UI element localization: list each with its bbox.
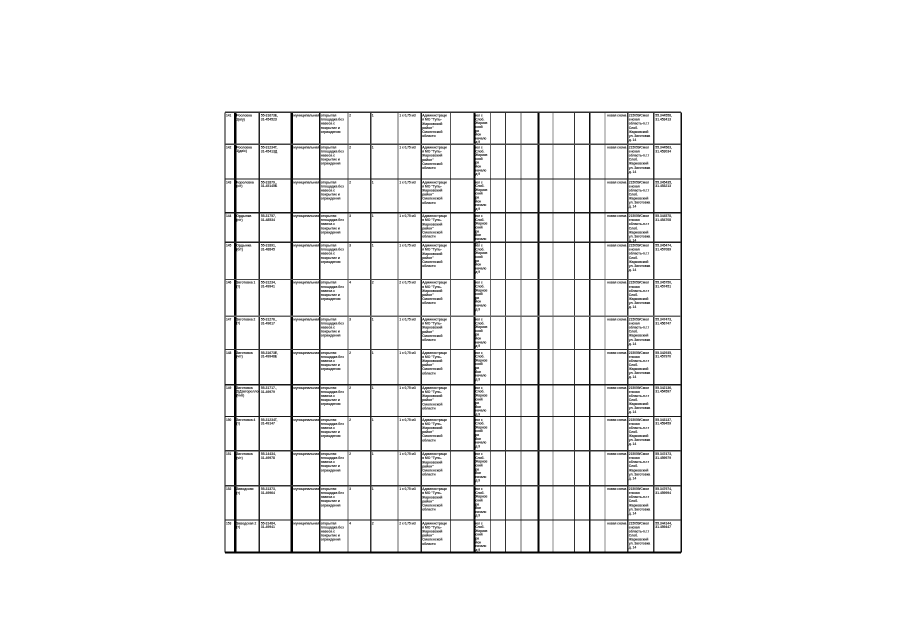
svg-text:2 х 0,75 м3: 2 х 0,75 м3 — [399, 281, 416, 285]
svg-text:2: 2 — [349, 146, 351, 150]
svg-text:муниципальная: муниципальная — [293, 244, 319, 248]
svg-text:153: 153 — [226, 521, 231, 525]
svg-text:31.454708: 31.454708 — [655, 218, 671, 222]
svg-text:д 9: д 9 — [475, 270, 480, 274]
svg-text:д. 14: д. 14 — [629, 138, 637, 142]
svg-text:2: 2 — [349, 386, 351, 390]
svg-text:(ч/т): (ч/т) — [236, 456, 243, 460]
svg-text:2: 2 — [349, 351, 351, 355]
svg-text:1 х 0,75 м3: 1 х 0,75 м3 — [399, 146, 416, 150]
svg-text:142: 142 — [226, 146, 231, 150]
svg-text:новая схема: новая схема — [607, 281, 626, 285]
svg-text:1: 1 — [372, 418, 374, 422]
svg-text:2: 2 — [349, 452, 351, 456]
svg-text:д 9: д 9 — [475, 548, 480, 552]
svg-text:ограждения: ограждения — [321, 297, 341, 301]
svg-text:149: 149 — [226, 386, 231, 390]
svg-text:4: 4 — [349, 521, 351, 525]
svg-text:ограждения: ограждения — [321, 468, 341, 472]
svg-text:области: области — [422, 201, 436, 205]
svg-text:31-49617: 31-49617 — [261, 321, 275, 325]
svg-text:д 9: д 9 — [475, 344, 480, 348]
svg-text:новая схема: новая схема — [607, 146, 626, 150]
svg-text:31-45145Б: 31-45145Б — [261, 184, 278, 188]
svg-text:д. 14: д. 14 — [629, 375, 637, 379]
svg-text:31.453413: 31.453413 — [655, 117, 671, 121]
svg-text:31.459979: 31.459979 — [655, 456, 671, 460]
svg-text:141: 141 — [226, 114, 231, 118]
svg-text:1 х 0,75 м3: 1 х 0,75 м3 — [399, 180, 416, 184]
svg-text:31-49941: 31-49941 — [261, 525, 275, 529]
svg-text:31-49964: 31-49964 — [261, 491, 275, 495]
svg-text:31-45413Д: 31-45413Д — [261, 149, 278, 153]
svg-text:31-49978: 31-49978 — [261, 456, 275, 460]
svg-text:1: 1 — [372, 214, 374, 218]
svg-text:новая схема: новая схема — [607, 114, 626, 118]
svg-text:31.459447: 31.459447 — [655, 525, 671, 529]
svg-text:2: 2 — [372, 281, 374, 285]
svg-text:муниципальная: муниципальная — [293, 521, 319, 525]
svg-text:д 9: д 9 — [475, 307, 480, 311]
svg-text:д 9: д 9 — [475, 207, 480, 211]
svg-text:области: области — [422, 338, 436, 342]
svg-text:152: 152 — [226, 487, 231, 491]
svg-text:1: 1 — [372, 487, 374, 491]
svg-text:новая схема: новая схема — [607, 214, 626, 218]
svg-text:области: области — [422, 264, 436, 268]
svg-text:3: 3 — [349, 318, 351, 322]
svg-text:31.459459: 31.459459 — [655, 422, 671, 426]
svg-text:1: 1 — [372, 351, 374, 355]
svg-text:31.457089: 31.457089 — [655, 247, 671, 251]
svg-text:2: 2 — [349, 180, 351, 184]
svg-text:д. 14: д. 14 — [629, 546, 637, 550]
svg-text:д 9: д 9 — [475, 479, 480, 483]
svg-text:31-48534: 31-48534 — [261, 218, 275, 222]
svg-text:новая схема: новая схема — [607, 487, 626, 491]
svg-text:1: 1 — [372, 180, 374, 184]
svg-text:(т): (т) — [236, 422, 240, 426]
svg-text:д. 14: д. 14 — [629, 205, 637, 209]
svg-text:области: области — [422, 235, 436, 239]
svg-text:д 9: д 9 — [475, 444, 480, 448]
svg-text:новая схема: новая схема — [607, 386, 626, 390]
svg-text:1 х 0,75 м3: 1 х 0,75 м3 — [399, 351, 416, 355]
svg-text:области: области — [422, 301, 436, 305]
svg-text:д. 14: д. 14 — [629, 238, 637, 242]
svg-text:д. 14: д. 14 — [629, 305, 637, 309]
svg-text:1: 1 — [372, 146, 374, 150]
svg-text:31-49948Е: 31-49948Е — [261, 355, 278, 359]
svg-text:ограждения: ограждения — [321, 434, 341, 438]
svg-text:1(да/с): 1(да/с) — [236, 149, 247, 153]
svg-text:д. 14: д. 14 — [629, 342, 637, 346]
svg-text:(т): (т) — [236, 284, 240, 288]
svg-text:3: 3 — [349, 487, 351, 491]
svg-text:муниципальная: муниципальная — [293, 146, 319, 150]
svg-text:1 х 0,75 м3: 1 х 0,75 м3 — [399, 114, 416, 118]
svg-text:31.453034: 31.453034 — [655, 149, 671, 153]
svg-text:3: 3 — [349, 244, 351, 248]
svg-text:31.457970: 31.457970 — [655, 355, 671, 359]
svg-text:31-49147: 31-49147 — [261, 422, 275, 426]
svg-text:муниципальная: муниципальная — [293, 418, 319, 422]
svg-text:(с/г): (с/г) — [236, 184, 242, 188]
svg-text:31.457451: 31.457451 — [655, 285, 671, 289]
svg-text:д. 14: д. 14 — [629, 410, 637, 414]
svg-text:ограждения: ограждения — [321, 367, 341, 371]
svg-text:новая схема: новая схема — [607, 351, 626, 355]
svg-text:новая схема: новая схема — [607, 521, 626, 525]
svg-text:области: области — [422, 438, 436, 442]
svg-text:(б/т): (б/т) — [236, 247, 243, 251]
svg-text:31-48845: 31-48845 — [261, 248, 275, 252]
svg-text:1 х 0,75 м3: 1 х 0,75 м3 — [399, 244, 416, 248]
svg-text:1 х 0,75 м3: 1 х 0,75 м3 — [399, 318, 416, 322]
svg-text:области: области — [422, 508, 436, 512]
svg-text:муниципальная: муниципальная — [293, 281, 319, 285]
svg-text:новая схема: новая схема — [607, 318, 626, 322]
svg-text:ограждения: ограждения — [321, 162, 341, 166]
svg-text:д 9: д 9 — [475, 140, 480, 144]
svg-text:143: 143 — [226, 180, 231, 184]
svg-text:ограждения: ограждения — [321, 130, 341, 134]
svg-text:31-45452З: 31-45452З — [261, 118, 278, 122]
svg-text:новая схема: новая схема — [607, 180, 626, 184]
svg-text:4: 4 — [349, 281, 351, 285]
svg-text:31.459994: 31.459994 — [655, 491, 671, 495]
svg-text:148: 148 — [226, 351, 231, 355]
svg-text:1(а/у): 1(а/у) — [236, 117, 245, 121]
svg-text:31.453213: 31.453213 — [655, 184, 671, 188]
svg-text:31.456747: 31.456747 — [655, 321, 671, 325]
svg-text:1 х 0,75 м3: 1 х 0,75 м3 — [399, 386, 416, 390]
svg-text:новая схема: новая схема — [607, 418, 626, 422]
svg-text:д. 14: д. 14 — [629, 268, 637, 272]
svg-text:ограждения: ограждения — [321, 260, 341, 264]
svg-text:2: 2 — [349, 114, 351, 118]
svg-text:1 х 0,75 м3: 1 х 0,75 м3 — [399, 214, 416, 218]
svg-text:3: 3 — [349, 214, 351, 218]
svg-text:1: 1 — [372, 114, 374, 118]
svg-text:д 9: д 9 — [475, 172, 480, 176]
svg-text:муниципальная: муниципальная — [293, 214, 319, 218]
svg-text:области: области — [422, 134, 436, 138]
svg-text:2 х 0,75 м3: 2 х 0,75 м3 — [399, 521, 416, 525]
svg-text:150: 150 — [226, 418, 231, 422]
svg-text:1: 1 — [372, 318, 374, 322]
svg-text:д. 14: д. 14 — [629, 170, 637, 174]
svg-text:муниципальная: муниципальная — [293, 386, 319, 390]
svg-text:д. 14: д. 14 — [629, 476, 637, 480]
svg-text:новая схема: новая схема — [607, 244, 626, 248]
svg-text:муниципальная: муниципальная — [293, 351, 319, 355]
svg-text:муниципальная: муниципальная — [293, 452, 319, 456]
svg-text:147: 147 — [226, 318, 231, 322]
svg-text:муниципальная: муниципальная — [293, 318, 319, 322]
svg-text:31-49941: 31-49941 — [261, 285, 275, 289]
svg-text:области: области — [422, 542, 436, 546]
svg-text:151: 151 — [226, 452, 231, 456]
svg-text:1 х 0,75 м3: 1 х 0,75 м3 — [399, 418, 416, 422]
svg-text:ограждения: ограждения — [321, 503, 341, 507]
svg-text:2: 2 — [349, 418, 351, 422]
svg-text:д. 14: д. 14 — [629, 511, 637, 515]
svg-text:муниципальная: муниципальная — [293, 180, 319, 184]
svg-text:области: области — [422, 473, 436, 477]
svg-text:(т): (т) — [236, 491, 240, 495]
svg-text:(ч/т): (ч/т) — [236, 355, 243, 359]
svg-text:ограждения: ограждения — [321, 334, 341, 338]
svg-text:(т): (т) — [236, 525, 240, 529]
svg-text:1 х 0,75 м3: 1 х 0,75 м3 — [399, 452, 416, 456]
svg-text:муниципальная: муниципальная — [293, 114, 319, 118]
svg-text:2: 2 — [372, 521, 374, 525]
svg-text:ограждения: ограждения — [321, 402, 341, 406]
svg-text:муниципальная: муниципальная — [293, 487, 319, 491]
svg-text:31.454597: 31.454597 — [655, 390, 671, 394]
svg-text:1 х 0,75 м3: 1 х 0,75 м3 — [399, 487, 416, 491]
svg-text:1: 1 — [372, 244, 374, 248]
svg-text:области: области — [422, 166, 436, 170]
svg-text:146: 146 — [226, 281, 231, 285]
svg-text:1: 1 — [372, 452, 374, 456]
svg-text:ограждения: ограждения — [321, 197, 341, 201]
svg-text:144: 144 — [226, 214, 231, 218]
svg-text:ограждения: ограждения — [321, 230, 341, 234]
svg-text:31-49979: 31-49979 — [261, 390, 275, 394]
svg-text:д 9: д 9 — [475, 413, 480, 417]
svg-text:1: 1 — [372, 386, 374, 390]
svg-text:(т): (т) — [236, 321, 240, 325]
svg-text:ограждения: ограждения — [321, 538, 341, 542]
svg-text:д. 14: д. 14 — [629, 442, 637, 446]
svg-text:д 9: д 9 — [475, 377, 480, 381]
svg-text:области: области — [422, 371, 436, 375]
svg-text:145: 145 — [226, 244, 231, 248]
svg-text:области: области — [422, 406, 436, 410]
svg-text:(№б): (№б) — [236, 393, 244, 397]
svg-text:новая схема: новая схема — [607, 452, 626, 456]
svg-text:(н/г): (н/г) — [236, 218, 242, 222]
svg-text:д 9: д 9 — [475, 514, 480, 518]
